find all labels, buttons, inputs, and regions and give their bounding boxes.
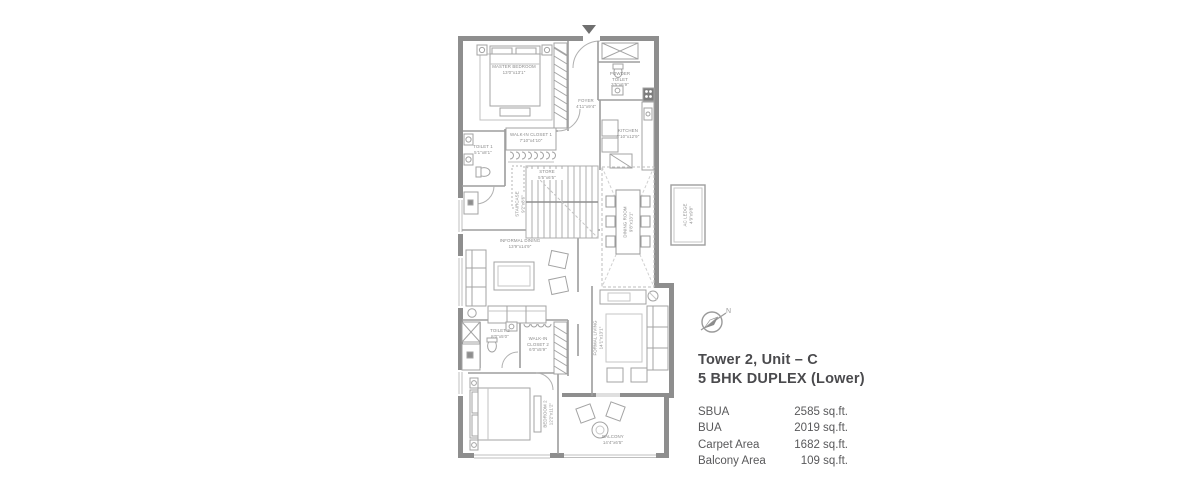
compass-icon — [698, 306, 738, 338]
area-label: SBUA — [698, 404, 729, 421]
area-label: BUA — [698, 420, 722, 437]
label-ac-ledge: AC LEDGE4'9"x9'8" — [682, 203, 693, 226]
area-value: 2019 sq.ft. — [794, 420, 848, 437]
bedroom-2-door-arc — [536, 373, 553, 390]
label-walk-in-closet-2: WALK-IN CLOSET 26'0"x5'9" — [524, 336, 552, 353]
label-balcony: BALCONY14'4"x6'5" — [583, 434, 643, 445]
floorplan-drawing — [450, 16, 710, 468]
unit-title: Tower 2, Unit – C 5 BHK DUPLEX (Lower) — [698, 351, 868, 389]
area-row-carpet: Carpet Area 1682 sq.ft. — [698, 437, 848, 454]
unit-title-line2: 5 BHK DUPLEX (Lower) — [698, 370, 868, 389]
entry-arrow-icon — [582, 25, 596, 34]
formal-living-furniture — [600, 290, 668, 382]
compass: N — [698, 306, 868, 343]
bedroom-2-furniture — [470, 378, 541, 450]
balcony-furniture — [576, 402, 625, 438]
area-row-sbua: SBUA 2585 sq.ft. — [698, 404, 848, 421]
label-kitchen: KITCHEN8'10"x12'9" — [612, 128, 644, 139]
area-value: 2585 sq.ft. — [794, 404, 848, 421]
compass-north-label: N — [726, 308, 731, 315]
master-wardrobe — [554, 43, 567, 128]
area-label: Carpet Area — [698, 437, 759, 454]
informal-dining-furniture — [466, 250, 568, 323]
label-dining-room: DINING ROOM9'8"x13'1" — [622, 206, 633, 237]
area-label: Balcony Area — [698, 453, 766, 470]
label-foyer: FOYER4'11"x9'4" — [571, 98, 601, 109]
area-table: SBUA 2585 sq.ft. BUA 2019 sq.ft. Carpet … — [698, 404, 848, 470]
area-row-balcony: Balcony Area 109 sq.ft. — [698, 453, 848, 470]
label-store: STORE5'5"x6'5" — [528, 169, 566, 180]
label-bedroom-2: BEDROOM 212'2"x11'2" — [542, 400, 553, 427]
area-value: 109 sq.ft. — [801, 453, 848, 470]
area-row-bua: BUA 2019 sq.ft. — [698, 420, 848, 437]
entry-door-arc — [573, 41, 600, 68]
label-walk-in-closet-1: WALK-IN CLOSET 17'10"x4'10" — [506, 132, 556, 143]
info-panel: N Tower 2, Unit – C 5 BHK DUPLEX (Lower)… — [698, 306, 868, 470]
master-bed — [477, 45, 552, 120]
unit-title-line1: Tower 2, Unit – C — [698, 351, 868, 370]
label-toilet-1: TOILET 15'1"x8'1" — [468, 144, 498, 155]
label-powder-toilet: POWDER TOILET3'5"x6'9" — [607, 71, 633, 88]
floorplan-page: MASTER BEDROOM13'0"x13'1" FOYER4'11"x9'4… — [0, 0, 1200, 483]
label-staircase: STAIRCASE9'2"x8'6" — [514, 191, 525, 216]
area-value: 1682 sq.ft. — [794, 437, 848, 454]
floorplan: MASTER BEDROOM13'0"x13'1" FOYER4'11"x9'4… — [450, 16, 710, 468]
label-master-bedroom: MASTER BEDROOM13'0"x13'1" — [484, 64, 544, 75]
label-informal-dining: INFORMAL DINING13'9"x14'9" — [490, 238, 550, 249]
label-formal-living: FORMAL LIVING14'1"x13'1" — [592, 320, 603, 355]
label-toilet-2: TOILET 28'0"x5'0" — [485, 328, 515, 339]
